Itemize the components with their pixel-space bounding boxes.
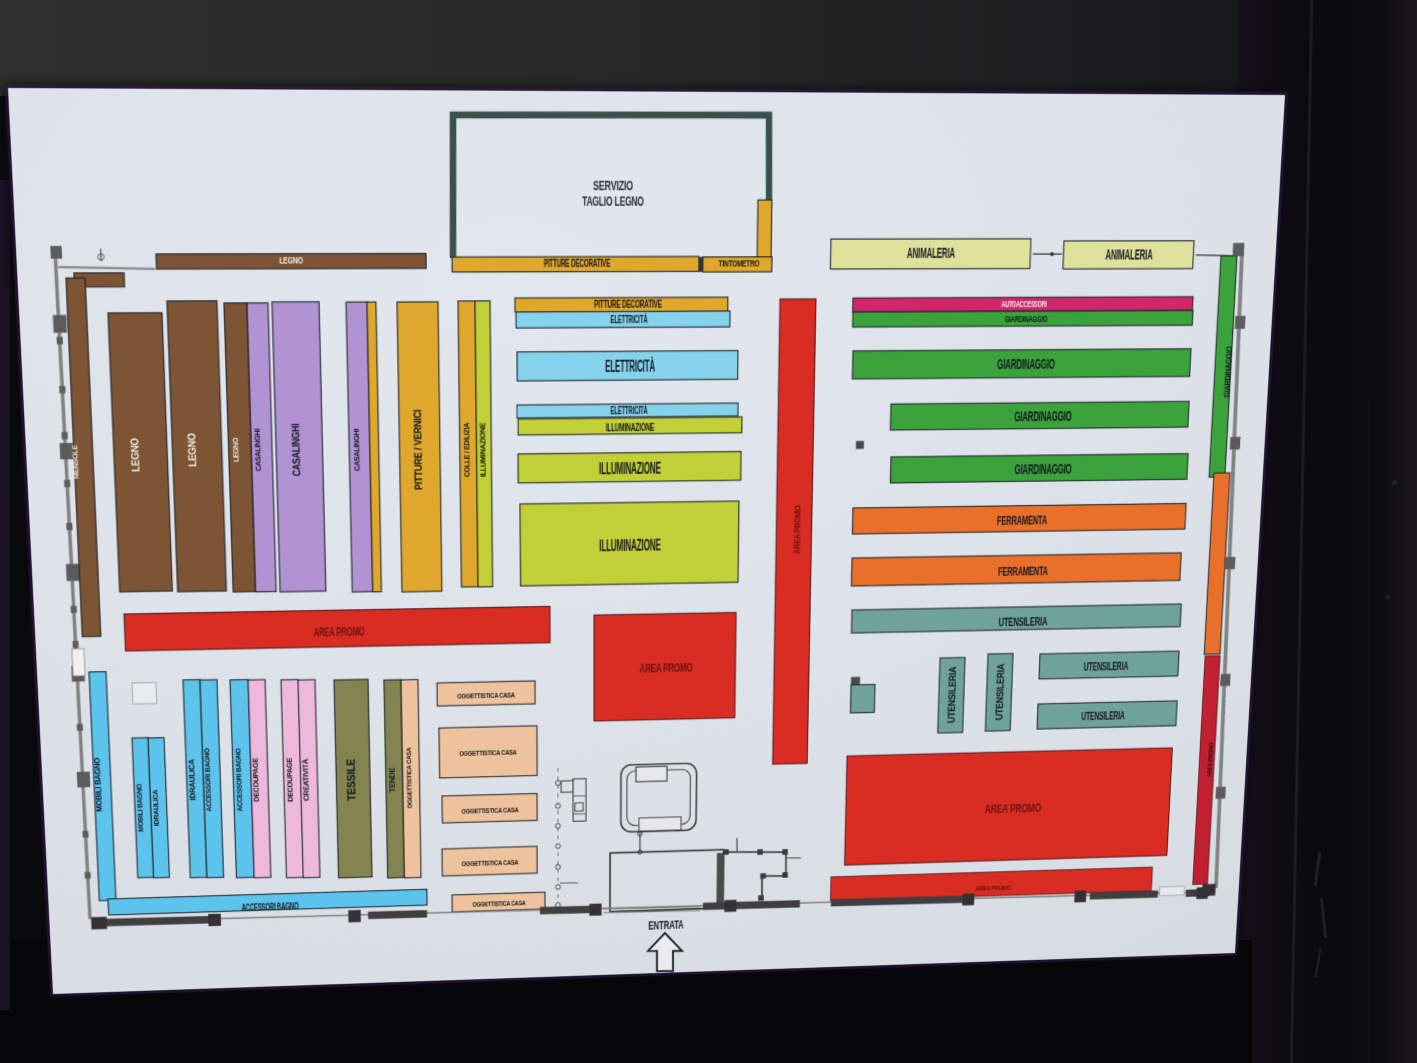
svg-text:IDRAULICA: IDRAULICA bbox=[151, 789, 161, 826]
svg-text:PITTURE / VERNICI: PITTURE / VERNICI bbox=[411, 410, 425, 491]
svg-text:ELETTRICITÀ: ELETTRICITÀ bbox=[610, 313, 647, 325]
svg-text:ILLUMINAZIONE: ILLUMINAZIONE bbox=[599, 535, 661, 554]
svg-text:UTENSILERIA: UTENSILERIA bbox=[945, 666, 959, 723]
svg-text:ILLUMINAZIONE: ILLUMINAZIONE bbox=[479, 422, 488, 477]
svg-text:COLLE / EDILIZIA: COLLE / EDILIZIA bbox=[463, 422, 472, 477]
svg-text:UTENSILERIA: UTENSILERIA bbox=[1083, 659, 1128, 673]
svg-text:AREA PROMO: AREA PROMO bbox=[975, 884, 1010, 893]
svg-text:CASALINGHI: CASALINGHI bbox=[352, 429, 361, 472]
svg-text:IDRAULICA: IDRAULICA bbox=[187, 759, 198, 801]
svg-text:DECOUPAGE: DECOUPAGE bbox=[251, 757, 261, 802]
svg-text:SERVIZIO: SERVIZIO bbox=[593, 177, 633, 193]
svg-text:LEGNO: LEGNO bbox=[231, 438, 240, 462]
svg-text:ELETTRICITÀ: ELETTRICITÀ bbox=[610, 404, 647, 416]
svg-text:AUTOACCESSORI: AUTOACCESSORI bbox=[1001, 300, 1047, 310]
svg-text:ANIMALERIA: ANIMALERIA bbox=[907, 246, 956, 262]
svg-text:PITTURE DECORATIVE: PITTURE DECORATIVE bbox=[544, 258, 610, 270]
svg-text:TESSILE: TESSILE bbox=[344, 758, 358, 801]
svg-text:GIARDINAGGIO: GIARDINAGGIO bbox=[1014, 409, 1072, 425]
svg-text:AREA PROMO: AREA PROMO bbox=[313, 625, 364, 640]
svg-text:FERRAMENTA: FERRAMENTA bbox=[998, 564, 1049, 579]
svg-text:CREATIVITÀ: CREATIVITÀ bbox=[301, 758, 310, 801]
svg-text:OGGETTISTICA CASA: OGGETTISTICA CASA bbox=[462, 858, 519, 868]
svg-text:ILLUMINAZIONE: ILLUMINAZIONE bbox=[599, 458, 661, 477]
svg-text:AREA PROMO: AREA PROMO bbox=[985, 800, 1042, 815]
svg-text:GIARDINAGGIO: GIARDINAGGIO bbox=[1005, 315, 1048, 325]
svg-text:GIARDINAGGIO: GIARDINAGGIO bbox=[1222, 346, 1233, 397]
svg-text:ILLUMINAZIONE: ILLUMINAZIONE bbox=[606, 420, 655, 433]
svg-text:OGGETTISTICA CASA: OGGETTISTICA CASA bbox=[459, 748, 517, 758]
svg-text:LEGNO: LEGNO bbox=[128, 438, 143, 472]
svg-text:ELETTRICITÀ: ELETTRICITÀ bbox=[605, 356, 655, 376]
svg-text:MENSOLE: MENSOLE bbox=[70, 445, 80, 479]
svg-text:CASALINGHI: CASALINGHI bbox=[253, 429, 263, 472]
svg-text:UTENSILERIA: UTENSILERIA bbox=[1081, 709, 1125, 723]
svg-text:ACCESSORI BAGNO: ACCESSORI BAGNO bbox=[241, 900, 298, 914]
svg-text:FERRAMENTA: FERRAMENTA bbox=[997, 513, 1048, 528]
svg-text:DECOUPAGE: DECOUPAGE bbox=[285, 757, 294, 802]
svg-text:ENTRATA: ENTRATA bbox=[648, 918, 684, 932]
svg-text:GIARDINAGGIO: GIARDINAGGIO bbox=[1014, 462, 1072, 478]
svg-text:TENDE: TENDE bbox=[387, 767, 396, 792]
svg-text:ANIMALERIA: ANIMALERIA bbox=[1105, 247, 1153, 263]
svg-text:GIARDINAGGIO: GIARDINAGGIO bbox=[997, 357, 1055, 373]
svg-text:LEGNO: LEGNO bbox=[185, 433, 199, 467]
svg-text:CASALINGHI: CASALINGHI bbox=[289, 424, 303, 477]
svg-text:TAGLIO LEGNO: TAGLIO LEGNO bbox=[582, 193, 644, 208]
svg-text:LEGNO: LEGNO bbox=[279, 256, 303, 267]
svg-text:AREA PROMO: AREA PROMO bbox=[793, 505, 804, 554]
svg-text:OGGETTISTICA CASA: OGGETTISTICA CASA bbox=[461, 805, 518, 815]
svg-text:UTENSILERIA: UTENSILERIA bbox=[998, 614, 1047, 629]
svg-text:OGGETTISTICA CASA: OGGETTISTICA CASA bbox=[457, 690, 515, 700]
svg-text:PITTURE DECORATIVE: PITTURE DECORATIVE bbox=[594, 299, 662, 311]
svg-text:UTENSILERIA: UTENSILERIA bbox=[993, 663, 1007, 720]
svg-text:OGGETTISTICA CASA: OGGETTISTICA CASA bbox=[406, 747, 413, 808]
svg-text:AREA PROMO: AREA PROMO bbox=[639, 661, 692, 675]
svg-text:TINTOMETRO: TINTOMETRO bbox=[718, 259, 759, 270]
